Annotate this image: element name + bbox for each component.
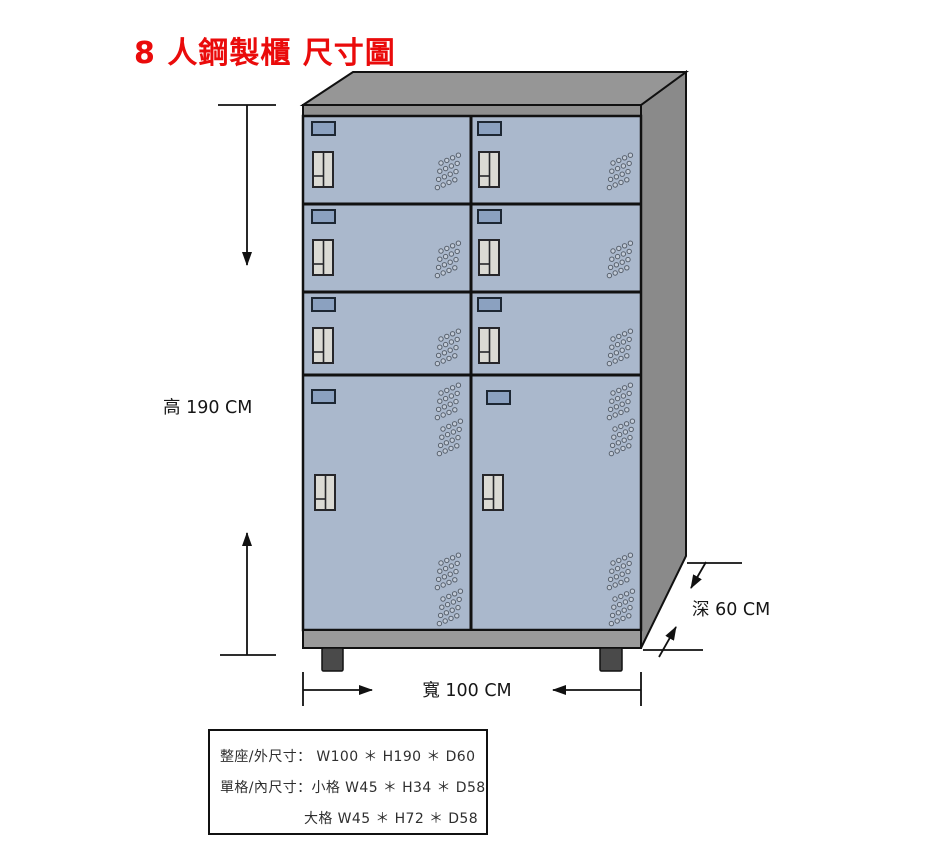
cabinet-top-panel: [303, 72, 686, 105]
cabinet-foot-left: [322, 648, 343, 671]
width-dimension-label: 寬 100 CM: [420, 677, 514, 702]
depth-dimension-label: 深 60 CM: [692, 596, 770, 621]
cabinet-side-panel: [641, 72, 686, 648]
cabinet-drawing: [303, 72, 686, 671]
cabinet-top-edge: [303, 105, 641, 116]
cabinet-foot-right: [600, 648, 622, 671]
dimension-diagram-page: 8 人鋼製櫃 尺寸圖 高 190 CM 寬 100 CM 深 60 CM 整座/…: [0, 0, 940, 859]
height-dimension: [218, 105, 276, 655]
height-dimension-label: 高 190 CM: [163, 394, 252, 419]
spec-line-inner-large-size: 大格 W45 ＊ H72 ＊ D58: [220, 804, 486, 835]
cabinet-base: [303, 630, 641, 648]
spec-box: 整座/外尺寸： W100 ＊ H190 ＊ D60 單格/內尺寸：小格 W45 …: [208, 729, 488, 835]
spec-line-outer-size: 整座/外尺寸： W100 ＊ H190 ＊ D60: [220, 742, 486, 773]
page-title: 8 人鋼製櫃 尺寸圖: [134, 28, 396, 72]
spec-line-inner-small-size: 單格/內尺寸：小格 W45 ＊ H34 ＊ D58: [220, 773, 486, 804]
